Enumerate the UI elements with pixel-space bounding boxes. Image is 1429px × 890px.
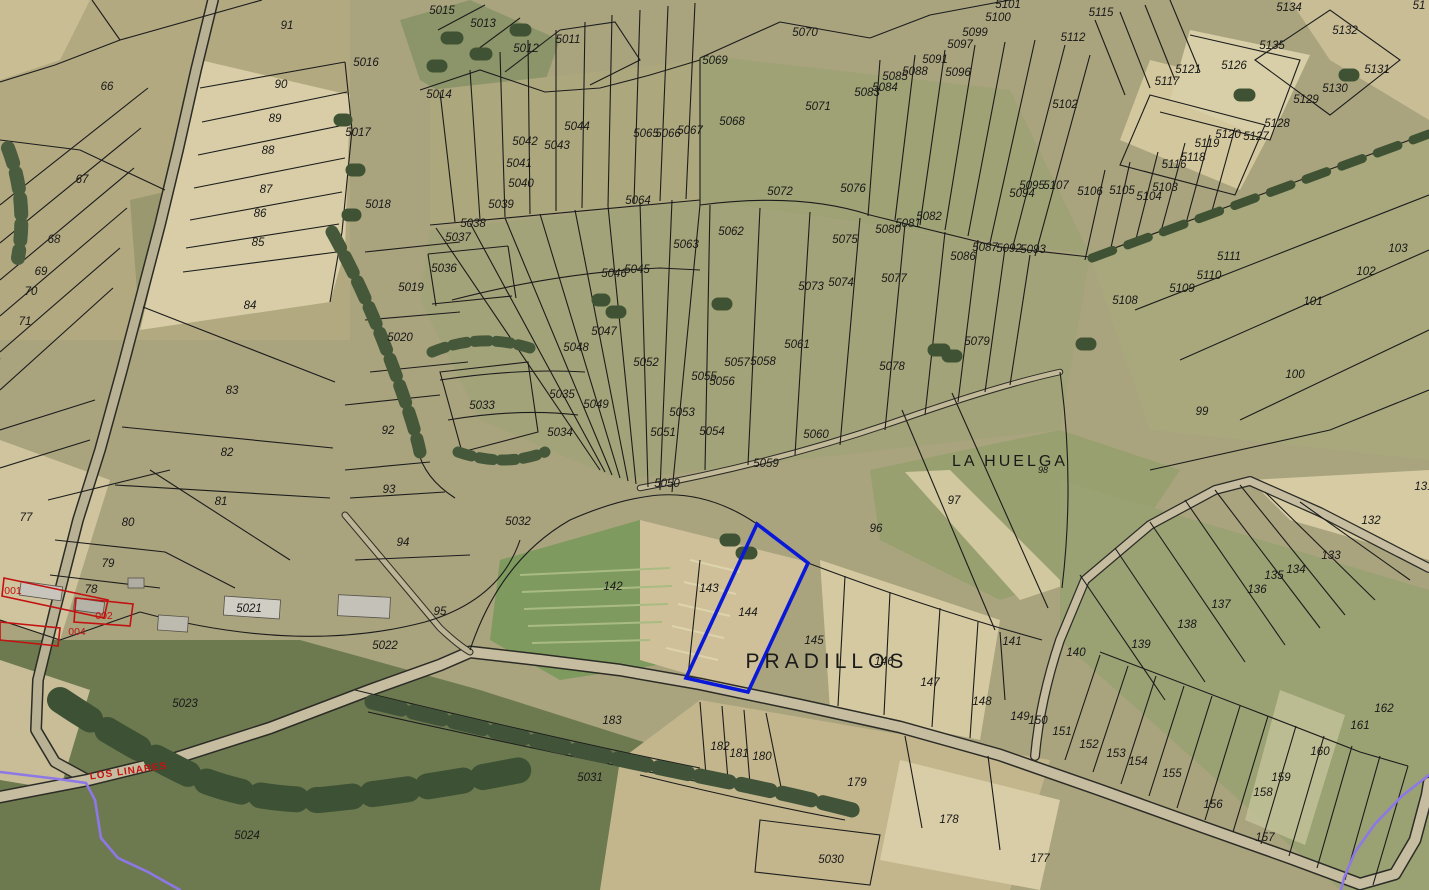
- parcel-label-154: 154: [1128, 756, 1147, 768]
- parcel-label-5019: 5019: [398, 282, 424, 294]
- parcel-label-5074: 5074: [828, 277, 854, 289]
- parcel-label-5013: 5013: [470, 18, 496, 30]
- parcel-label-91: 91: [281, 20, 294, 32]
- parcel-label-180: 180: [752, 751, 772, 763]
- parcel-label-5049: 5049: [583, 399, 609, 411]
- parcel-label-5105: 5105: [1109, 185, 1135, 197]
- parcel-label-5068: 5068: [719, 116, 745, 128]
- parcel-label-71: 71: [19, 316, 32, 328]
- parcel-label-96: 96: [870, 523, 883, 535]
- parcel-label-5087: 5087: [972, 242, 998, 254]
- cadastral-map-viewport[interactable]: 6667686970717277787980818283848586878889…: [0, 0, 1429, 890]
- parcel-label-137: 137: [1211, 599, 1231, 611]
- parcel-label-183: 183: [602, 715, 622, 727]
- parcel-label-5071: 5071: [805, 101, 831, 113]
- parcel-label-5120: 5120: [1215, 129, 1241, 141]
- parcel-label-143: 143: [699, 583, 719, 595]
- parcel-label-5057: 5057: [724, 357, 750, 369]
- parcel-label-5042: 5042: [512, 136, 538, 148]
- parcel-label-5106: 5106: [1077, 186, 1103, 198]
- parcel-label-181: 181: [729, 748, 748, 760]
- parcel-label-5017: 5017: [345, 127, 371, 139]
- parcel-label-144: 144: [738, 607, 757, 619]
- parcel-label-5070: 5070: [792, 27, 818, 39]
- parcel-label-5079: 5079: [964, 336, 990, 348]
- parcel-label-5118: 5118: [1181, 152, 1206, 164]
- parcel-label-5135: 5135: [1259, 40, 1285, 52]
- parcel-label-182: 182: [710, 741, 730, 753]
- parcel-label-5023: 5023: [172, 698, 198, 710]
- parcel-label-147: 147: [920, 677, 940, 689]
- parcel-label-70: 70: [25, 286, 38, 298]
- parcel-label-5096: 5096: [945, 67, 971, 79]
- parcel-label-5063: 5063: [673, 239, 699, 251]
- parcel-label-159: 159: [1271, 772, 1291, 784]
- parcel-label-5044: 5044: [564, 121, 590, 133]
- parcel-label-5030: 5030: [818, 854, 844, 866]
- parcel-label-161: 161: [1350, 720, 1369, 732]
- parcel-label-87: 87: [260, 184, 273, 196]
- parcel-label-5131: 5131: [1364, 64, 1390, 76]
- parcel-label-152: 152: [1079, 739, 1099, 751]
- parcel-label-5014: 5014: [426, 89, 452, 101]
- parcel-label-5109: 5109: [1169, 283, 1195, 295]
- parcel-label-139: 139: [1131, 639, 1151, 651]
- parcel-label-5102: 5102: [1052, 99, 1078, 111]
- parcel-label-5127: 5127: [1243, 131, 1269, 143]
- parcel-label-5050: 5050: [654, 478, 680, 490]
- parcel-label-5035: 5035: [549, 389, 575, 401]
- parcel-label-82: 82: [221, 447, 234, 459]
- parcel-label-178: 178: [939, 814, 959, 826]
- parcel-label-85: 85: [252, 237, 265, 249]
- parcel-label-5067: 5067: [677, 125, 703, 137]
- parcel-label-5092: 5092: [996, 243, 1022, 255]
- parcel-label-155: 155: [1162, 768, 1182, 780]
- parcel-label-5084: 5084: [872, 82, 898, 94]
- parcel-label-5064: 5064: [625, 195, 651, 207]
- parcel-label-5104: 5104: [1136, 191, 1162, 203]
- parcel-label-5099: 5099: [962, 27, 988, 39]
- parcel-label-99: 99: [1196, 406, 1209, 418]
- parcel-label-5048: 5048: [563, 342, 589, 354]
- red-parcel-label-002: 002: [95, 610, 113, 622]
- parcel-label-5134: 5134: [1276, 2, 1302, 14]
- cadastral-map-canvas[interactable]: 6667686970717277787980818283848586878889…: [0, 0, 1429, 890]
- parcel-label-5128: 5128: [1264, 118, 1290, 130]
- parcel-label-5117: 5117: [1155, 76, 1180, 88]
- parcel-label-138: 138: [1177, 619, 1197, 631]
- parcel-label-88: 88: [262, 145, 275, 157]
- parcel-label-5078: 5078: [879, 361, 905, 373]
- parcel-label-153: 153: [1106, 748, 1126, 760]
- place-label-la-huelga: LA HUELGA: [952, 453, 1068, 470]
- parcel-label-5024: 5024: [234, 830, 260, 842]
- parcel-label-5093: 5093: [1020, 244, 1046, 256]
- parcel-label-81: 81: [215, 496, 228, 508]
- parcel-label-5076: 5076: [840, 183, 866, 195]
- parcel-label-5039: 5039: [488, 199, 514, 211]
- parcel-label-79: 79: [102, 558, 115, 570]
- parcel-label-77: 77: [20, 512, 33, 524]
- parcel-label-94: 94: [397, 537, 410, 549]
- parcel-label-93: 93: [383, 484, 396, 496]
- parcel-label-101: 101: [1303, 296, 1322, 308]
- parcel-label-5112: 5112: [1061, 32, 1086, 44]
- parcel-label-5091: 5091: [922, 54, 948, 66]
- parcel-label-5031: 5031: [577, 772, 603, 784]
- parcel-label-5061: 5061: [784, 339, 810, 351]
- red-parcel-label-001: 001: [4, 585, 22, 597]
- parcel-label-51: 51: [1413, 0, 1426, 12]
- place-label-pradillos: PRADILLOS: [746, 650, 909, 673]
- parcel-label-5041: 5041: [506, 158, 532, 170]
- parcel-label-5121: 5121: [1175, 64, 1201, 76]
- parcel-label-90: 90: [275, 79, 288, 91]
- parcel-label-5108: 5108: [1112, 295, 1138, 307]
- parcel-label-69: 69: [35, 266, 48, 278]
- parcel-label-5062: 5062: [718, 226, 744, 238]
- parcel-label-68: 68: [48, 234, 61, 246]
- parcel-label-5047: 5047: [591, 326, 617, 338]
- parcel-label-132: 132: [1361, 515, 1381, 527]
- parcel-label-156: 156: [1203, 799, 1223, 811]
- parcel-label-134: 134: [1286, 564, 1305, 576]
- parcel-label-5046: 5046: [601, 268, 627, 280]
- parcel-label-5043: 5043: [544, 140, 570, 152]
- parcel-label-5032: 5032: [505, 516, 531, 528]
- parcel-label-5058: 5058: [750, 356, 776, 368]
- parcel-label-67: 67: [76, 174, 89, 186]
- parcel-label-78: 78: [85, 584, 98, 596]
- parcel-label-5082: 5082: [916, 211, 942, 223]
- parcel-label-5088: 5088: [902, 66, 928, 78]
- parcel-label-151: 151: [1052, 726, 1071, 738]
- parcel-label-80: 80: [122, 517, 135, 529]
- red-parcel-label-004: 004: [68, 626, 86, 638]
- parcel-label-5097: 5097: [947, 39, 973, 51]
- parcel-label-5034: 5034: [547, 427, 573, 439]
- parcel-label-5129: 5129: [1293, 94, 1319, 106]
- parcel-label-5040: 5040: [508, 178, 534, 190]
- parcel-label-5072: 5072: [767, 186, 793, 198]
- parcel-label-141: 141: [1002, 636, 1021, 648]
- parcel-label-135: 135: [1264, 570, 1284, 582]
- parcel-label-103: 103: [1388, 243, 1408, 255]
- parcel-label-148: 148: [972, 696, 992, 708]
- parcel-label-5045: 5045: [624, 264, 650, 276]
- parcel-label-5059: 5059: [753, 458, 779, 470]
- parcel-label-5052: 5052: [633, 357, 659, 369]
- parcel-label-5038: 5038: [460, 218, 486, 230]
- parcel-label-102: 102: [1356, 266, 1376, 278]
- parcel-label-5132: 5132: [1332, 25, 1358, 37]
- parcel-label-100: 100: [1285, 369, 1305, 381]
- parcel-label-142: 142: [603, 581, 623, 593]
- parcel-label-84: 84: [244, 300, 257, 312]
- parcel-label-5060: 5060: [803, 429, 829, 441]
- parcel-label-5022: 5022: [372, 640, 398, 652]
- parcel-label-83: 83: [226, 385, 239, 397]
- parcel-label-5130: 5130: [1322, 83, 1348, 95]
- parcel-label-5107: 5107: [1043, 180, 1069, 192]
- parcel-label-5077: 5077: [881, 273, 907, 285]
- parcel-label-5018: 5018: [365, 199, 391, 211]
- parcel-label-5111: 5111: [1217, 251, 1241, 263]
- parcel-label-5033: 5033: [469, 400, 495, 412]
- parcel-label-150: 150: [1028, 715, 1048, 727]
- parcel-label-136: 136: [1247, 584, 1267, 596]
- parcel-label-131: 131: [1414, 481, 1429, 493]
- parcel-label-95: 95: [434, 606, 447, 618]
- parcel-label-5100: 5100: [985, 12, 1011, 24]
- parcel-label-5110: 5110: [1197, 270, 1222, 282]
- parcel-label-5012: 5012: [513, 43, 539, 55]
- parcel-label-5021: 5021: [236, 603, 262, 615]
- parcel-label-5051: 5051: [650, 427, 676, 439]
- parcel-label-160: 160: [1310, 746, 1330, 758]
- parcel-label-5020: 5020: [387, 332, 413, 344]
- parcel-label-5069: 5069: [702, 55, 728, 67]
- parcel-label-158: 158: [1253, 787, 1273, 799]
- parcel-label-5015: 5015: [429, 5, 455, 17]
- parcel-label-5037: 5037: [445, 232, 471, 244]
- parcel-label-5056: 5056: [709, 376, 735, 388]
- parcel-label-5095: 5095: [1019, 180, 1045, 192]
- parcel-label-5126: 5126: [1221, 60, 1247, 72]
- parcel-label-157: 157: [1255, 832, 1275, 844]
- parcel-label-140: 140: [1066, 647, 1086, 659]
- parcel-label-179: 179: [847, 777, 867, 789]
- parcel-label-97: 97: [948, 495, 961, 507]
- parcel-label-5016: 5016: [353, 57, 379, 69]
- parcel-label-86: 86: [254, 208, 267, 220]
- parcel-label-145: 145: [804, 635, 824, 647]
- parcel-label-89: 89: [269, 113, 282, 125]
- parcel-label-5053: 5053: [669, 407, 695, 419]
- parcel-label-5101: 5101: [995, 0, 1021, 11]
- parcel-label-92: 92: [382, 425, 395, 437]
- parcel-label-177: 177: [1030, 853, 1050, 865]
- parcel-label-5054: 5054: [699, 426, 725, 438]
- parcel-label-5011: 5011: [556, 34, 581, 46]
- parcel-label-66: 66: [101, 81, 114, 93]
- parcel-label-133: 133: [1321, 550, 1341, 562]
- parcel-label-5075: 5075: [832, 234, 858, 246]
- parcel-label-5115: 5115: [1089, 7, 1114, 19]
- parcel-label-149: 149: [1010, 711, 1030, 723]
- parcel-label-5073: 5073: [798, 281, 824, 293]
- parcel-label-162: 162: [1374, 703, 1394, 715]
- parcel-label-5036: 5036: [431, 263, 457, 275]
